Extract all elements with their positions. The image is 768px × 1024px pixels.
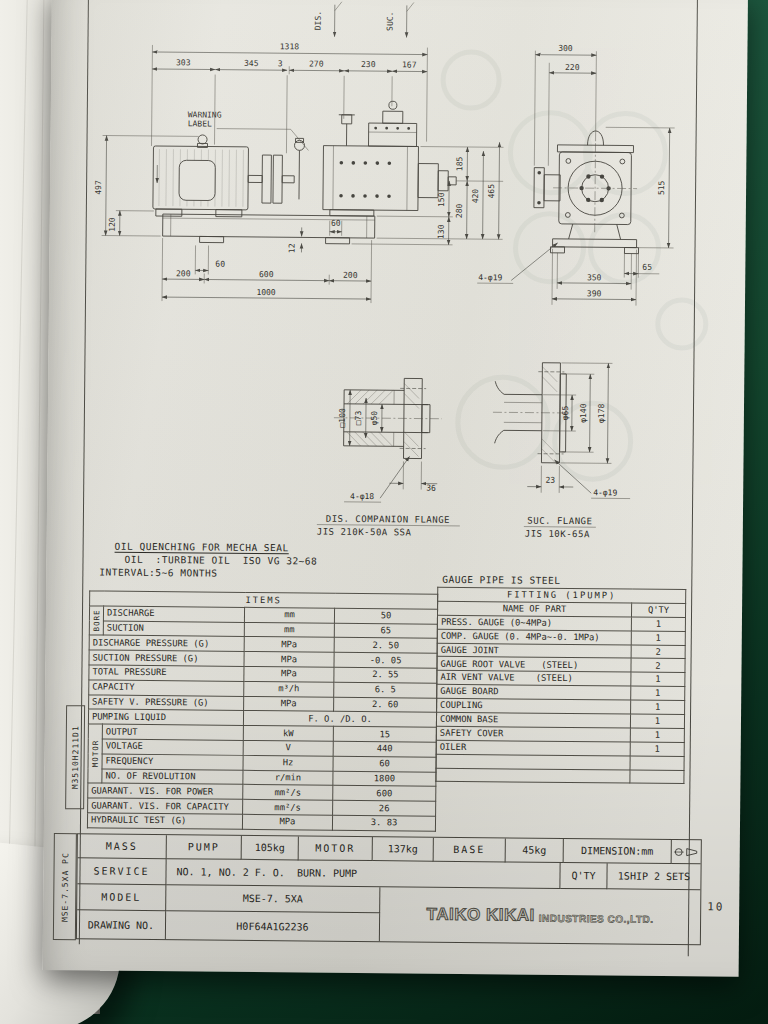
dim-label: 465 bbox=[487, 184, 496, 199]
item-name: DISCHARGE PRESSURE (G) bbox=[89, 635, 244, 651]
projection-symbol-icon bbox=[673, 846, 699, 858]
flange-title: SUC. FLANGE bbox=[527, 516, 592, 527]
item-value: 65 bbox=[334, 623, 437, 639]
fitting-table: FITTING (1PUMP) NAME OF PARTQ'TY PRESS. … bbox=[435, 587, 686, 785]
item-value: 15 bbox=[333, 726, 436, 742]
pump-mass-label: PUMP bbox=[167, 835, 242, 860]
item-unit: mm bbox=[244, 607, 334, 623]
dim-label: 65 bbox=[642, 263, 652, 272]
drawing-no-value: H0F64A1G2236 bbox=[166, 911, 380, 941]
dim-label: 200 bbox=[176, 269, 191, 278]
service-label: SERVICE bbox=[77, 858, 166, 885]
dim-label: □100 bbox=[338, 408, 347, 428]
item-value: 600 bbox=[333, 786, 436, 802]
item-name: SUCTION PRESSURE (G) bbox=[89, 650, 244, 666]
dis-flange-detail: □100 □73 φ50 36 4-φ18 DIS. COMPANION FLA… bbox=[317, 378, 462, 538]
item-value: -0. 05 bbox=[334, 652, 437, 668]
dim-label: 280 bbox=[455, 203, 464, 218]
item-unit: MPa bbox=[244, 696, 334, 712]
flange-spec: JIS 210K-50A SSA bbox=[317, 527, 412, 538]
title-block: MASS PUMP 105kg MOTOR 137kg BASE 45kg DI… bbox=[76, 833, 702, 945]
item-value: 26 bbox=[333, 800, 436, 816]
dim-label: φ50 bbox=[370, 411, 379, 426]
dim-label: φ140 bbox=[579, 403, 588, 423]
fitting-qty: 2 bbox=[631, 659, 685, 673]
service-value: NO. 1, NO. 2 F. O. BURN. PUMP bbox=[166, 859, 560, 889]
item-unit: m³/h bbox=[244, 681, 334, 697]
note-gauge-pipe: GAUGE PIPE IS STEEL bbox=[442, 574, 560, 586]
dim-label: 23 bbox=[545, 476, 555, 485]
hole-callout: 4-φ19 bbox=[478, 273, 502, 282]
motor-mass-value: 137kg bbox=[373, 837, 434, 862]
dim-label: 185 bbox=[455, 156, 464, 171]
item-name: SAFETY V. PRESSURE (G) bbox=[89, 694, 244, 710]
item-value: 50 bbox=[334, 608, 437, 624]
item-unit: V bbox=[243, 740, 333, 756]
fitting-empty-cell bbox=[630, 770, 684, 784]
dim-label: 515 bbox=[657, 180, 666, 195]
item-unit: kW bbox=[243, 726, 333, 742]
hole-callout: 4-φ19 bbox=[593, 488, 617, 497]
flow-label-suc: SUC. bbox=[386, 12, 395, 31]
fitting-col-qty: Q'TY bbox=[631, 603, 685, 617]
fitting-qty: 2 bbox=[631, 645, 685, 659]
fitting-qty: 1 bbox=[630, 742, 684, 756]
dim-label: 120 bbox=[108, 217, 117, 232]
pump-mass-value: 105kg bbox=[242, 836, 299, 861]
flange-title: DIS. COMPANION FLANGE bbox=[326, 514, 450, 525]
dim-label: 167 bbox=[402, 60, 417, 69]
item-name: NO. OF REVOLUTION bbox=[102, 769, 243, 785]
company-name-sub: INDUSTRIES CO.,LTD. bbox=[539, 908, 654, 924]
mass-label: MASS bbox=[78, 834, 167, 859]
item-unit: mm²/s bbox=[243, 800, 333, 816]
dim-label: 303 bbox=[176, 58, 191, 67]
drawing-no-label: DRAWING NO. bbox=[77, 910, 166, 939]
item-unit: mm²/s bbox=[243, 785, 333, 801]
dim-label: 1000 bbox=[256, 288, 276, 297]
margin-code-box: M3510H211D1 bbox=[65, 705, 85, 809]
item-name: HYDRAULIC TEST (G) bbox=[87, 813, 242, 829]
projection-symbol-cell bbox=[672, 840, 701, 864]
dim-label: 420 bbox=[471, 189, 480, 204]
flow-label-dis: DIS. bbox=[314, 11, 323, 30]
watermark-circles bbox=[439, 52, 708, 481]
note-oil-quenching: OIL QUENCHING FOR MECHA SEAL bbox=[115, 541, 289, 554]
warning-label-text: LABEL bbox=[188, 119, 212, 128]
items-table: ITEMS BORE DISCHARGE mm 50 SUCTIONmm65 D… bbox=[87, 590, 438, 831]
flange-spec: JIS 10K-65A bbox=[525, 529, 590, 540]
fitting-empty-row bbox=[436, 768, 630, 784]
dim-label: 230 bbox=[361, 60, 376, 69]
margin-model-box: MSE-7.5XA PC bbox=[53, 833, 77, 940]
item-unit: MPa bbox=[244, 637, 334, 653]
item-unit: MPa bbox=[244, 652, 334, 668]
item-name: FREQUENCY bbox=[102, 754, 243, 770]
item-name: GUARANT. VIS. FOR POWER bbox=[88, 783, 243, 799]
dim-label: 600 bbox=[259, 270, 274, 279]
note-interval: INTERVAL:5~6 MONTHS bbox=[99, 566, 217, 578]
dim-label: 60 bbox=[215, 260, 225, 269]
items-group-motor: MOTOR bbox=[88, 724, 103, 783]
page-number: 10 bbox=[707, 900, 724, 913]
fitting-qty: 1 bbox=[631, 617, 685, 631]
item-unit: MPa bbox=[242, 814, 332, 830]
dim-label: 345 bbox=[244, 59, 259, 68]
front-view-dimensions bbox=[101, 0, 560, 305]
dim-label: 350 bbox=[587, 273, 602, 282]
item-value: 6. 5 bbox=[334, 682, 437, 698]
suc-flange-detail: φ65 φ140 φ178 23 4-φ19 SUC. FLANGE JIS 1… bbox=[492, 362, 632, 539]
item-name: PUMPING LIQUID bbox=[88, 709, 243, 725]
item-name: SUCTION bbox=[103, 621, 244, 637]
title-block-lower-rows: MODEL MSE-7. 5XA DRAWING NO. H0F64A1G223… bbox=[77, 884, 700, 944]
hole-callout: 4-φ18 bbox=[350, 492, 374, 501]
item-unit: r/min bbox=[243, 770, 333, 786]
photo-scene: 1318 303 345 3 270 230 167 DIS. SUC. WAR… bbox=[0, 0, 768, 1024]
dim-label: φ65 bbox=[561, 405, 570, 420]
dim-label: 390 bbox=[587, 289, 602, 298]
model-value: MSE-7. 5XA bbox=[166, 885, 380, 913]
dim-label: 497 bbox=[94, 180, 103, 195]
item-unit: Hz bbox=[243, 755, 333, 771]
dim-label: 220 bbox=[565, 63, 580, 72]
margin-code-upper: M3510H211D1 bbox=[70, 725, 80, 789]
item-name: VOLTAGE bbox=[102, 739, 243, 755]
dim-label: □73 bbox=[354, 411, 363, 426]
base-mass-label: BASE bbox=[434, 838, 506, 863]
item-unit: MPa bbox=[244, 666, 334, 682]
item-value: 3. 83 bbox=[332, 815, 435, 831]
item-unit: mm bbox=[244, 622, 334, 638]
item-value: 2. 50 bbox=[334, 638, 437, 654]
item-name: CAPACITY bbox=[89, 680, 244, 696]
company-logo: TAIKO KIKAI INDUSTRIES CO.,LTD. bbox=[380, 887, 701, 944]
dim-label: 36 bbox=[426, 484, 436, 493]
base-mass-value: 45kg bbox=[506, 838, 564, 863]
dim-label: 60 bbox=[331, 219, 341, 228]
item-value: 440 bbox=[333, 741, 436, 757]
items-group-bore: BORE bbox=[89, 606, 103, 636]
item-name: DISCHARGE bbox=[103, 606, 244, 622]
warning-label-text: WARNING bbox=[188, 110, 222, 119]
note-oil-type: OIL :TURBINE OIL ISO VG 32~68 bbox=[124, 554, 317, 567]
model-label: MODEL bbox=[77, 884, 166, 911]
dim-label: 150 bbox=[437, 192, 446, 207]
item-name: OUTPUT bbox=[102, 724, 243, 740]
fitting-qty: 1 bbox=[630, 714, 684, 728]
item-name: TOTAL PRESSURE bbox=[89, 665, 244, 681]
company-name-main: TAIKO KIKAI bbox=[427, 905, 535, 926]
dim-label: 130 bbox=[437, 224, 446, 239]
dim-label: 200 bbox=[343, 271, 358, 280]
item-value: 2. 55 bbox=[334, 667, 437, 683]
fitting-qty: 1 bbox=[630, 728, 684, 742]
fitting-qty: 1 bbox=[631, 631, 685, 645]
fitting-qty: 1 bbox=[631, 672, 685, 686]
motor-mass-label: MOTOR bbox=[299, 836, 373, 861]
dim-label: 1318 bbox=[280, 42, 300, 51]
dim-label: 300 bbox=[558, 44, 573, 53]
margin-code-lower: MSE-7.5XA PC bbox=[60, 852, 70, 922]
dim-label: 3 bbox=[278, 59, 283, 68]
item-name: GUARANT. VIS. FOR CAPACITY bbox=[88, 798, 243, 814]
dim-label: φ178 bbox=[597, 403, 606, 423]
dim-label: 270 bbox=[309, 59, 324, 68]
dimension-unit-label: DIMENSION:mm bbox=[564, 839, 672, 864]
qty-value: 1SHIP 2 SETS bbox=[607, 863, 700, 890]
item-value: 60 bbox=[333, 756, 436, 772]
item-value: 2. 60 bbox=[334, 697, 437, 713]
fitting-qty: 1 bbox=[631, 686, 685, 700]
drawing-sheet: 1318 303 345 3 270 230 167 DIS. SUC. WAR… bbox=[43, 0, 748, 977]
qty-label: Q'TY bbox=[560, 863, 607, 889]
fitting-empty-cell bbox=[630, 756, 684, 770]
dim-label: 12 bbox=[287, 243, 296, 253]
item-value: 1800 bbox=[333, 771, 436, 787]
fitting-qty: 1 bbox=[631, 700, 685, 714]
